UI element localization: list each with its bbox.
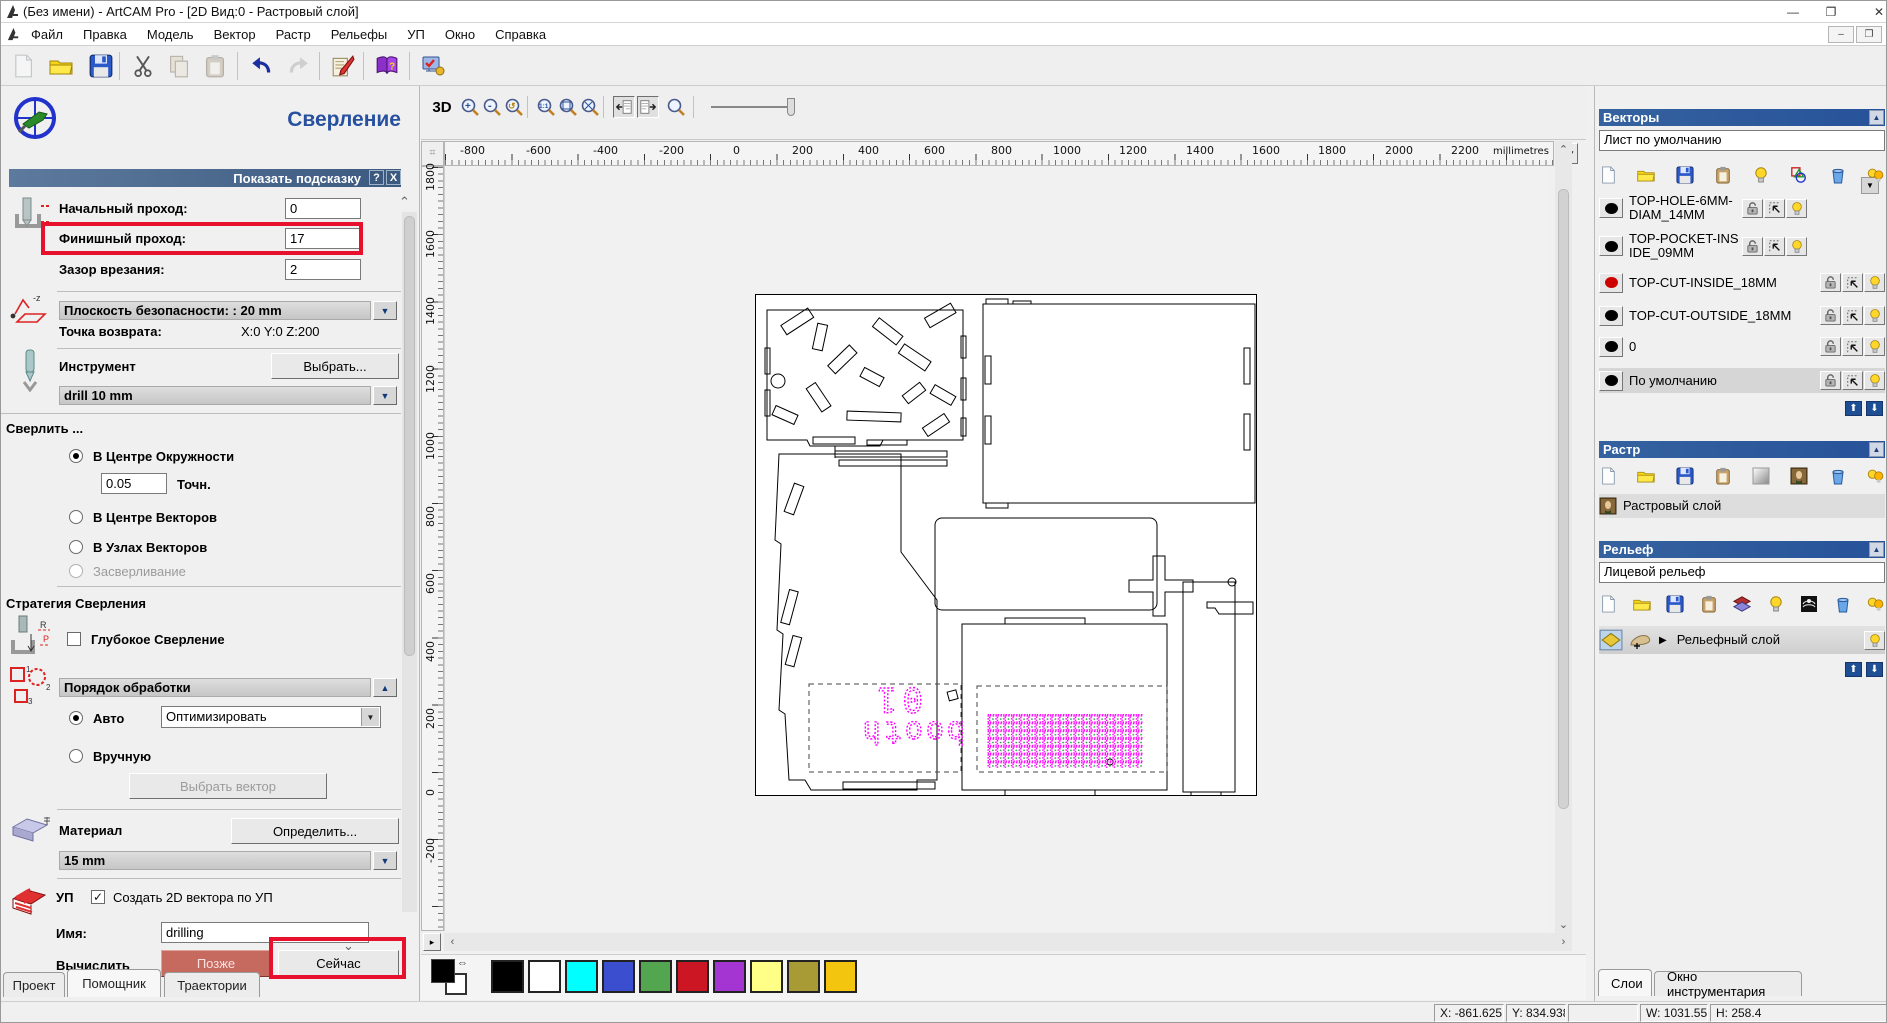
raster-layer-row[interactable]: Растровый слой (1599, 494, 1885, 518)
tip-bar: Показать подсказку (9, 169, 401, 187)
material-label: Материал (59, 823, 122, 838)
layer-name[interactable]: TOP-CUT-OUTSIDE_18MM (1629, 309, 1819, 323)
artcam-window: ? (Без имени) - ArtCAM Pro - [2D Вид:0 -… (0, 0, 1887, 1023)
ruler-label: -400 (593, 144, 618, 157)
tab-toolbox[interactable]: Окно инструментария (1654, 971, 1802, 996)
lock-icon[interactable] (1820, 306, 1841, 325)
ruler-label: 200 (792, 144, 813, 157)
close-tip-button[interactable]: X (386, 170, 401, 185)
relief-header-label: Рельеф (1603, 542, 1653, 557)
vectors-header-label: Векторы (1603, 110, 1659, 125)
finish-pass-label: Финишный проход: (59, 231, 186, 246)
radio-auto[interactable] (69, 711, 83, 725)
svg-text:P: P (43, 634, 49, 644)
app-icon (5, 4, 21, 20)
ruler-label: 0 (424, 789, 437, 796)
ruler-label: 1400 (424, 297, 437, 325)
cad-drawing: 01 booth (755, 294, 1257, 796)
menu-bar: Файл Правка Модель Вектор Растр Рельефы … (1, 23, 1887, 46)
layer-colour-dot (1605, 203, 1618, 214)
ruler-label: 1200 (424, 365, 437, 393)
radio-vector-centers-label: В Центре Векторов (93, 510, 217, 525)
layer-name[interactable]: 0 (1629, 340, 1819, 354)
layer-move-down-button[interactable]: ⬇ (1866, 662, 1883, 677)
optimize-combo[interactable]: Оптимизировать▼ (161, 706, 381, 728)
lock-icon[interactable] (1820, 371, 1841, 390)
deep-drill-label: Глубокое Сверление (91, 632, 225, 647)
ruler-label: 1800 (1318, 144, 1346, 157)
deep-drill-icon: R P (7, 614, 57, 660)
vectors-toolbar (1599, 163, 1885, 187)
tolerance-label: Точн. (177, 477, 211, 492)
main-area: Сверление Показать подсказку ? X Начальн… (1, 86, 1887, 1001)
ruler-label: 1000 (1053, 144, 1081, 157)
merge-stack-icon[interactable] (1733, 595, 1751, 613)
palette-colour-2[interactable] (565, 960, 598, 993)
ruler-label: 400 (858, 144, 879, 157)
ruler-label: -800 (460, 144, 485, 157)
layer-colour-dot (1605, 375, 1618, 386)
start-pass-label: Начальный проход: (59, 201, 188, 216)
help-book-icon[interactable] (371, 50, 403, 82)
menu-model[interactable]: Модель (137, 25, 204, 44)
visibility-bulb-icon[interactable] (1786, 199, 1807, 218)
tip-bar-label: Показать подсказку (233, 171, 361, 186)
toolbar-separator (363, 52, 364, 80)
cut-icon[interactable] (127, 50, 159, 82)
app-icon-small (6, 27, 21, 42)
svg-text:1:1: 1:1 (539, 103, 549, 110)
raster-header-label: Растр (1603, 442, 1640, 457)
radio-vector-centers[interactable] (69, 510, 83, 524)
view-toolbar: 3D + - ↺ 1:1 (421, 86, 1586, 140)
divider (57, 348, 401, 349)
rollup-icon[interactable]: ▲ (1869, 442, 1884, 457)
palette-colour-3[interactable] (602, 960, 635, 993)
clear-layer-icon[interactable] (1752, 467, 1770, 485)
new-layer-icon[interactable] (1599, 467, 1617, 485)
palette-colour-8[interactable] (787, 960, 820, 993)
ruler-label: 2200 (1451, 144, 1479, 157)
assistant-scrollbar-thumb[interactable] (404, 216, 415, 656)
return-point-value: X:0 Y:0 Z:200 (241, 324, 320, 339)
palette-colour-6[interactable] (713, 960, 746, 993)
layer-move-up-button[interactable]: ⬆ (1845, 401, 1862, 416)
status-y: Y: 834.938 (1506, 1004, 1566, 1022)
menu-raster[interactable]: Растр (266, 25, 321, 44)
ruler-label: 1000 (424, 432, 437, 460)
nc-program-icon (7, 881, 51, 919)
snap-icon[interactable] (1764, 199, 1785, 218)
toolbar-separator (693, 96, 694, 118)
vector-layer-row[interactable]: 0 (1599, 335, 1885, 358)
toolpath-name-input[interactable] (161, 922, 369, 943)
toolbar-separator (319, 52, 320, 80)
tab-project[interactable]: Проект (3, 972, 65, 997)
status-w: W: 1031.556 (1640, 1004, 1708, 1022)
ruler-label: 1600 (424, 230, 437, 258)
delete-icon[interactable] (1834, 595, 1852, 613)
palette-colour-0[interactable] (491, 960, 524, 993)
scroll-right-icon[interactable]: › (1557, 935, 1570, 948)
svg-text:↺: ↺ (508, 101, 516, 111)
ruler-label: 200 (424, 708, 437, 729)
start-pass-input[interactable] (285, 198, 361, 219)
primary-colour-swatch[interactable] (431, 959, 455, 983)
child-restore-button[interactable]: ❐ (1856, 26, 1882, 43)
calculate-now-button[interactable]: Сейчас (278, 950, 399, 977)
svg-text:-: - (488, 100, 492, 112)
view-2d: 3D + - ↺ 1:1 ⌗ -800 -600 (421, 86, 1586, 1001)
zoom-1to1-icon[interactable]: 1:1 (535, 96, 557, 118)
status-h: H: 258.4 (1710, 1004, 1887, 1022)
raster-toolbar (1599, 464, 1885, 488)
zoom-slider-handle[interactable] (787, 98, 795, 116)
relief-thumbnail (1599, 629, 1623, 651)
radio-circle-centers-label: В Центре Окружности (93, 449, 234, 464)
plunge-label: Зазор врезания: (59, 262, 165, 277)
drill-section-header: Сверлить ... (6, 421, 83, 436)
palette-colour-7[interactable] (750, 960, 783, 993)
radio-manual-label: Вручную (93, 749, 151, 764)
ruler-label: 1200 (1119, 144, 1147, 157)
engrave-text-line1: 01 (872, 679, 923, 719)
radio-manual[interactable] (69, 749, 83, 763)
layer-colour-dot (1605, 277, 1618, 288)
scroll-down-icon[interactable]: ⌄ (1557, 918, 1570, 931)
radio-spot-drill[interactable] (69, 564, 83, 578)
finish-pass-input[interactable] (285, 228, 361, 249)
paste-icon[interactable] (1700, 595, 1718, 613)
snap-icon[interactable] (1764, 237, 1785, 256)
canvas-hscrollbar[interactable]: ‹ › (444, 933, 1572, 951)
rollup-icon[interactable]: ▲ (1869, 542, 1884, 557)
tab-assistant[interactable]: Помощник (67, 969, 161, 997)
material-define-button[interactable]: Определить... (231, 818, 399, 844)
optimize-combo-value: Оптимизировать (166, 709, 267, 724)
toolpath-editor-icon[interactable] (327, 50, 359, 82)
undo-icon[interactable] (245, 50, 277, 82)
layer-name[interactable]: По умолчанию (1629, 374, 1819, 388)
delete-icon[interactable] (1829, 166, 1847, 184)
radio-auto-label: Авто (93, 711, 124, 726)
vector-layer-row[interactable]: TOP-POCKET-INSIDE_09MM (1599, 229, 1885, 263)
open-icon[interactable] (1633, 595, 1651, 613)
material-expand-button[interactable]: ▼ (373, 851, 397, 870)
radio-spot-drill-label: Засверливание (93, 564, 186, 579)
visibility-bulb-icon[interactable] (1864, 371, 1885, 390)
layer-move-up-button[interactable]: ⬆ (1845, 662, 1862, 677)
radio-vector-nodes-label: В Узлах Векторов (93, 540, 207, 555)
palette-colour-5[interactable] (676, 960, 709, 993)
layer-colour-dot (1605, 341, 1618, 352)
layer-colour-button[interactable] (1599, 337, 1623, 357)
safe-plane-bar: Плоскость безопасности: : 20 mm (59, 301, 371, 320)
ruler-units-label: millimetres (1493, 146, 1549, 157)
ruler-label: 400 (424, 641, 437, 662)
engrave-text-line2: booth (860, 714, 965, 749)
new-layer-icon[interactable] (1599, 595, 1617, 613)
expander-icon[interactable]: ▶ (1659, 635, 1667, 646)
show-layer-icon[interactable] (1752, 166, 1770, 184)
all-visible-icon[interactable] (1867, 467, 1885, 485)
redo-icon[interactable] (283, 50, 315, 82)
menu-reliefs[interactable]: Рельефы (321, 25, 398, 44)
minimize-button[interactable]: — (1776, 1, 1810, 22)
tool-select-button[interactable]: Выбрать... (271, 353, 399, 379)
view-3d-toggle[interactable]: 3D (429, 96, 455, 118)
all-visible-icon[interactable] (1867, 595, 1885, 613)
divider (1, 413, 401, 414)
ruler-label: 2000 (1385, 144, 1413, 157)
divider (57, 291, 401, 292)
tool-label: Инструмент (59, 359, 136, 374)
create-2d-checkbox[interactable]: ✓ (91, 890, 105, 904)
raster-layer-name[interactable]: Растровый слой (1623, 499, 1885, 513)
vector-layer-row-selected[interactable]: По умолчанию (1599, 368, 1885, 393)
snap-icon[interactable] (1842, 371, 1863, 390)
vector-layer-row[interactable]: TOP-CUT-INSIDE_18MM (1599, 271, 1885, 294)
radio-circle-centers[interactable] (69, 449, 83, 463)
relief-toolbar (1599, 591, 1885, 617)
relief-side-value: Лицевой рельеф (1604, 564, 1706, 579)
toolbar-separator (119, 52, 120, 80)
layer-colour-button[interactable] (1599, 371, 1623, 391)
name-label: Имя: (56, 926, 87, 941)
return-point-label: Точка возврата: (59, 324, 162, 339)
safe-plane-expand-button[interactable]: ▼ (373, 301, 397, 320)
menu-edit[interactable]: Правка (73, 25, 137, 44)
canvas-vscrollbar-thumb[interactable] (1558, 189, 1569, 809)
divider (57, 809, 401, 810)
snap-next-toggle[interactable] (637, 96, 659, 118)
scroll-down-icon[interactable]: ⌄ (343, 938, 354, 954)
layer-move-down-button[interactable]: ⬇ (1866, 401, 1883, 416)
relief-layer-row[interactable]: ▶ Рельефный слой (1599, 626, 1885, 654)
visibility-bulb-icon[interactable] (1864, 273, 1885, 292)
toolbar-separator (409, 52, 410, 80)
svg-text:R: R (40, 620, 47, 630)
ruler-label: 1800 (424, 163, 437, 191)
ruler-label: 1600 (1252, 144, 1280, 157)
tab-toolpaths[interactable]: Траектории (164, 972, 260, 997)
new-sheet-icon[interactable] (1599, 166, 1617, 184)
plunge-input[interactable] (285, 259, 361, 280)
show-layer-icon[interactable] (1767, 595, 1785, 613)
zoom-fit-icon[interactable] (579, 96, 601, 118)
ruler-label: -600 (526, 144, 551, 157)
restore-button[interactable]: ❐ (1814, 1, 1848, 22)
radio-vector-nodes[interactable] (69, 540, 83, 554)
tab-layers[interactable]: Слои (1598, 969, 1652, 996)
svg-text:2: 2 (46, 683, 51, 692)
save-icon[interactable] (1666, 595, 1684, 613)
snap-icon[interactable] (1842, 306, 1863, 325)
paste-icon[interactable] (1714, 166, 1732, 184)
deep-drill-checkbox[interactable] (67, 632, 81, 646)
palette-colour-9[interactable] (824, 960, 857, 993)
snap-icon[interactable] (1842, 273, 1863, 292)
lock-icon[interactable] (1742, 237, 1763, 256)
material-icon (9, 811, 53, 845)
material-value-bar: 15 mm (59, 851, 371, 870)
toolbar-separator (603, 96, 604, 118)
safe-plane-icon: -z (7, 292, 53, 328)
layer-name[interactable]: TOP-HOLE-6MM-DIAM_14MM (1629, 194, 1741, 222)
palette-colour-1[interactable] (528, 960, 561, 993)
ruler-label: 800 (424, 506, 437, 527)
visibility-bulb-icon[interactable] (1864, 631, 1885, 650)
divider (57, 878, 401, 879)
open-file-icon[interactable] (45, 50, 77, 82)
vector-layer-row[interactable]: TOP-CUT-OUTSIDE_18MM (1599, 304, 1885, 327)
title-bar: (Без имени) - ArtCAM Pro - [2D Вид:0 - Р… (1, 1, 1887, 23)
drill-grid-pattern (987, 714, 1143, 768)
ruler-label: 600 (424, 573, 437, 594)
paste-icon[interactable] (199, 50, 231, 82)
layer-name[interactable]: TOP-CUT-INSIDE_18MM (1629, 276, 1819, 290)
visibility-bulb-icon[interactable] (1786, 237, 1807, 256)
save-icon[interactable] (1676, 166, 1694, 184)
all-visible-icon[interactable] (1867, 166, 1885, 184)
help-tip-button[interactable]: ? (369, 170, 384, 185)
scroll-up-icon[interactable]: ⌃ (1557, 143, 1570, 156)
zoom-in-icon[interactable]: + (459, 96, 481, 118)
model-viewport[interactable]: 01 booth (444, 166, 1547, 931)
divider (57, 586, 401, 587)
svg-text:1: 1 (26, 665, 31, 674)
save-icon[interactable] (1676, 467, 1694, 485)
relief-section-header: Рельеф▲ (1599, 541, 1885, 558)
save-file-icon[interactable] (85, 50, 117, 82)
layer-colour-button[interactable] (1599, 198, 1623, 218)
scroll-up-icon[interactable]: ⌃ (399, 194, 410, 210)
stamp-icon[interactable] (1800, 595, 1818, 613)
zoom-previous-icon[interactable]: ↺ (503, 96, 525, 118)
ruler-vertical[interactable]: 1800 1600 1400 1200 1000 800 600 400 200… (421, 166, 444, 931)
layer-name[interactable]: TOP-POCKET-INSIDE_09MM (1629, 232, 1741, 260)
canvas-vscrollbar[interactable]: ⌃ ⌄ (1555, 141, 1572, 933)
sheet-combo-value: Лист по умолчанию (1604, 132, 1721, 147)
layers-panel: Векторы▲ Лист по умолчанию▼ TOP-HOLE-6MM… (1594, 86, 1887, 1001)
layer-colour-dot (1605, 310, 1618, 321)
ruler-label: 600 (924, 144, 945, 157)
tolerance-input[interactable] (101, 473, 167, 494)
window-title: (Без имени) - ArtCAM Pro - [2D Вид:0 - Р… (23, 4, 359, 19)
status-x: X: -861.625 (1434, 1004, 1504, 1022)
scroll-left-icon[interactable]: ‹ (446, 935, 459, 948)
paste-icon[interactable] (1714, 467, 1732, 485)
zoom-out-icon[interactable]: - (481, 96, 503, 118)
chevron-down-icon[interactable]: ▼ (361, 708, 379, 726)
svg-text:3: 3 (28, 697, 33, 706)
layer-colour-button[interactable] (1599, 306, 1623, 326)
relief-layer-name[interactable]: Рельефный слой (1677, 633, 1863, 647)
layer-colour-button[interactable] (1599, 273, 1623, 293)
drilling-tool-icon (9, 94, 61, 142)
tool-expand-button[interactable]: ▼ (373, 386, 397, 405)
strategy-header: Стратегия Сверления (6, 596, 146, 611)
status-bar: X: -861.625 Y: 834.938 W: 1031.556 H: 25… (1, 1001, 1887, 1023)
lock-icon[interactable] (1820, 273, 1841, 292)
ruler-label: 1400 (1186, 144, 1214, 157)
raster-section-header: Растр▲ (1599, 441, 1885, 458)
child-minimize-button[interactable]: – (1828, 26, 1854, 43)
shapes-icon[interactable] (1790, 166, 1808, 184)
add-clay-icon[interactable] (1629, 631, 1651, 649)
delete-icon[interactable] (1829, 467, 1847, 485)
snap-prev-toggle[interactable] (613, 96, 635, 118)
new-file-icon[interactable] (7, 50, 39, 82)
ruler-horizontal[interactable]: -800 -600 -400 -200 0 200 400 600 800 10… (444, 141, 1554, 166)
copy-image-icon[interactable] (1790, 467, 1808, 485)
order-collapse-button[interactable]: ▲ (373, 678, 397, 697)
order-header-bar: Порядок обработки (59, 678, 371, 697)
visibility-bulb-icon[interactable] (1864, 337, 1885, 356)
page-title: Сверление (287, 108, 401, 132)
menu-nc[interactable]: УП (397, 25, 435, 44)
nc-label: УП (56, 890, 73, 905)
open-icon[interactable] (1637, 467, 1655, 485)
status-empty (1568, 1004, 1638, 1022)
menu-vector[interactable]: Вектор (204, 25, 266, 44)
copy-icon[interactable] (163, 50, 195, 82)
colour-palette: ⇔ (421, 954, 1586, 1000)
toolbar-separator (237, 52, 238, 80)
raster-thumbnail (1599, 497, 1617, 515)
tool-icon (15, 348, 45, 392)
menu-window[interactable]: Окно (435, 25, 485, 44)
select-vector-button[interactable]: Выбрать вектор (129, 773, 327, 799)
ruler-label: 0 (733, 144, 740, 157)
pan-mode-button[interactable]: ▸ (423, 933, 441, 951)
ruler-label: 800 (991, 144, 1012, 157)
svg-text:+: + (465, 101, 471, 112)
vectors-section-header: Векторы▲ (1599, 109, 1885, 126)
sheet-combo[interactable]: Лист по умолчанию▼ (1599, 130, 1885, 151)
rollup-icon[interactable]: ▲ (1869, 110, 1884, 125)
ruler-label: -200 (659, 144, 684, 157)
pick-magnifier-icon[interactable] (665, 96, 687, 118)
menu-file[interactable]: Файл (21, 25, 73, 44)
create-2d-label: Создать 2D вектора по УП (113, 890, 273, 905)
vector-layer-row[interactable]: TOP-HOLE-6MM-DIAM_14MM (1599, 191, 1885, 225)
toolbar-separator (527, 96, 528, 118)
options-wizard-icon[interactable] (417, 50, 449, 82)
drill-pass-icon (9, 196, 53, 236)
zoom-objects-icon[interactable] (557, 96, 579, 118)
layer-colour-button[interactable] (1599, 236, 1623, 256)
lock-icon[interactable] (1820, 337, 1841, 356)
palette-colour-4[interactable] (639, 960, 672, 993)
assistant-panel: Сверление Показать подсказку ? X Начальн… (1, 86, 420, 1001)
main-toolbar (1, 46, 1887, 86)
ruler-label: -200 (424, 838, 437, 863)
relief-side-combo[interactable]: Лицевой рельеф▼ (1599, 562, 1885, 583)
svg-text:-z: -z (33, 293, 41, 303)
tool-name-bar: drill 10 mm (59, 386, 371, 405)
link-colours-icon[interactable]: ⇔ (457, 957, 468, 969)
layer-colour-dot (1605, 241, 1618, 252)
visibility-bulb-icon[interactable] (1864, 306, 1885, 325)
lock-icon[interactable] (1742, 199, 1763, 218)
open-icon[interactable] (1637, 166, 1655, 184)
zoom-slider-track[interactable] (711, 106, 791, 108)
machining-order-icon: 1 2 3 (7, 664, 55, 708)
snap-icon[interactable] (1842, 337, 1863, 356)
menu-help[interactable]: Справка (485, 25, 556, 44)
close-button[interactable]: ✕ (1862, 1, 1887, 22)
